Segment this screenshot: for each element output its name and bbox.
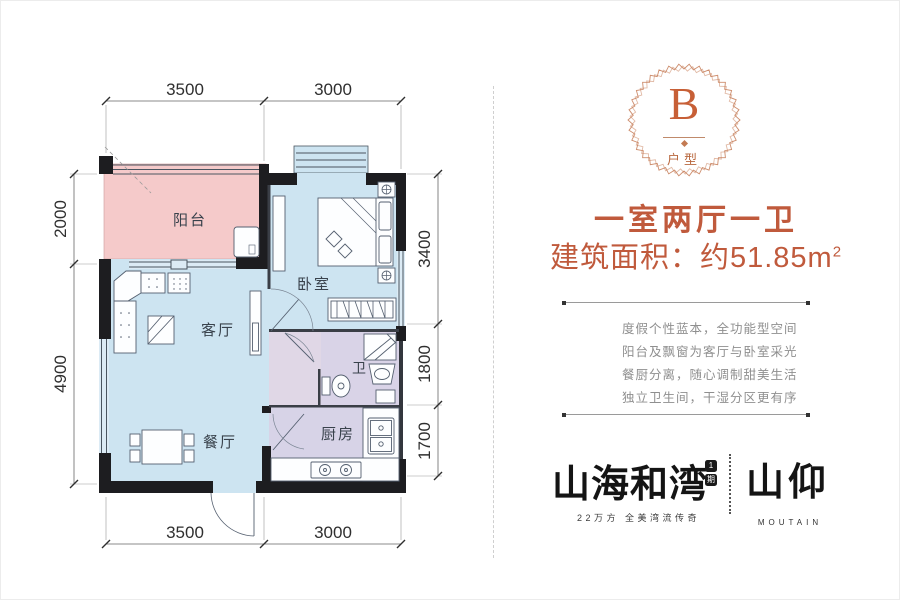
room-label-bedroom: 卧室 bbox=[297, 276, 331, 293]
dim-right-bedroom: 3400 bbox=[415, 230, 434, 268]
dim-top-right: 3000 bbox=[314, 80, 352, 99]
room-label-kitchen: 厨房 bbox=[321, 426, 355, 443]
brand-phase-badge-bottom: 期 bbox=[705, 474, 717, 486]
brand-phase-badge-top: 1 bbox=[705, 460, 717, 472]
badge-divider-line bbox=[663, 137, 705, 138]
section-divider bbox=[493, 86, 494, 558]
description-rule-top bbox=[563, 302, 809, 303]
description-line: 餐厨分离，随心调制甜美生活 bbox=[622, 364, 798, 387]
room-label-balcony: 阳台 bbox=[173, 212, 207, 229]
badge-letter: B bbox=[623, 81, 745, 127]
brand-tagline: 22万方 全美湾流传奇 bbox=[577, 511, 700, 524]
dim-right-bath: 1800 bbox=[415, 345, 434, 383]
unit-type-badge: B 户型 bbox=[623, 59, 745, 181]
dim-right-kitchen: 1700 bbox=[415, 422, 434, 460]
brand-secondary-subtitle: MOUTAIN bbox=[746, 518, 834, 527]
badge-label: 户型 bbox=[623, 149, 745, 168]
unit-description: 度假个性蓝本，全功能型空间 阳台及飘窗为客厅与卧室采光 餐厨分离，随心调制甜美生… bbox=[622, 318, 798, 410]
dim-left-balcony: 2000 bbox=[51, 200, 70, 238]
brand-divider bbox=[729, 454, 731, 514]
dim-left-living: 4900 bbox=[51, 355, 70, 393]
dim-bottom-left: 3500 bbox=[166, 523, 204, 542]
brand-secondary-logo: 山仰 bbox=[746, 451, 830, 506]
room-label-dining: 餐厅 bbox=[203, 434, 237, 451]
dim-bottom-right: 3000 bbox=[314, 523, 352, 542]
brand-primary-logo: 山海和湾 bbox=[552, 453, 708, 508]
description-line: 独立卫生间，干湿分区更有序 bbox=[622, 387, 798, 410]
brand-phase-badge: 1 期 bbox=[705, 460, 717, 488]
unit-area: 建筑面积：约51.85m2 bbox=[531, 234, 861, 276]
dim-top-left: 3500 bbox=[166, 80, 204, 99]
floorplan-poster: 3500 3000 3500 3000 2000 4900 3400 1800 … bbox=[0, 0, 900, 600]
unit-headline: 一室两厅一卫 bbox=[546, 195, 846, 239]
floorplan-drawing: 3500 3000 3500 3000 2000 4900 3400 1800 … bbox=[31, 56, 481, 566]
description-rule-bottom bbox=[563, 414, 809, 415]
unit-area-exponent: 2 bbox=[833, 243, 842, 260]
room-label-living: 客厅 bbox=[201, 322, 235, 339]
description-line: 度假个性蓝本，全功能型空间 bbox=[622, 318, 798, 341]
unit-area-text: 建筑面积：约51.85m bbox=[550, 242, 833, 274]
room-label-bath: 卫 bbox=[352, 360, 368, 376]
description-line: 阳台及飘窗为客厅与卧室采光 bbox=[622, 341, 798, 364]
